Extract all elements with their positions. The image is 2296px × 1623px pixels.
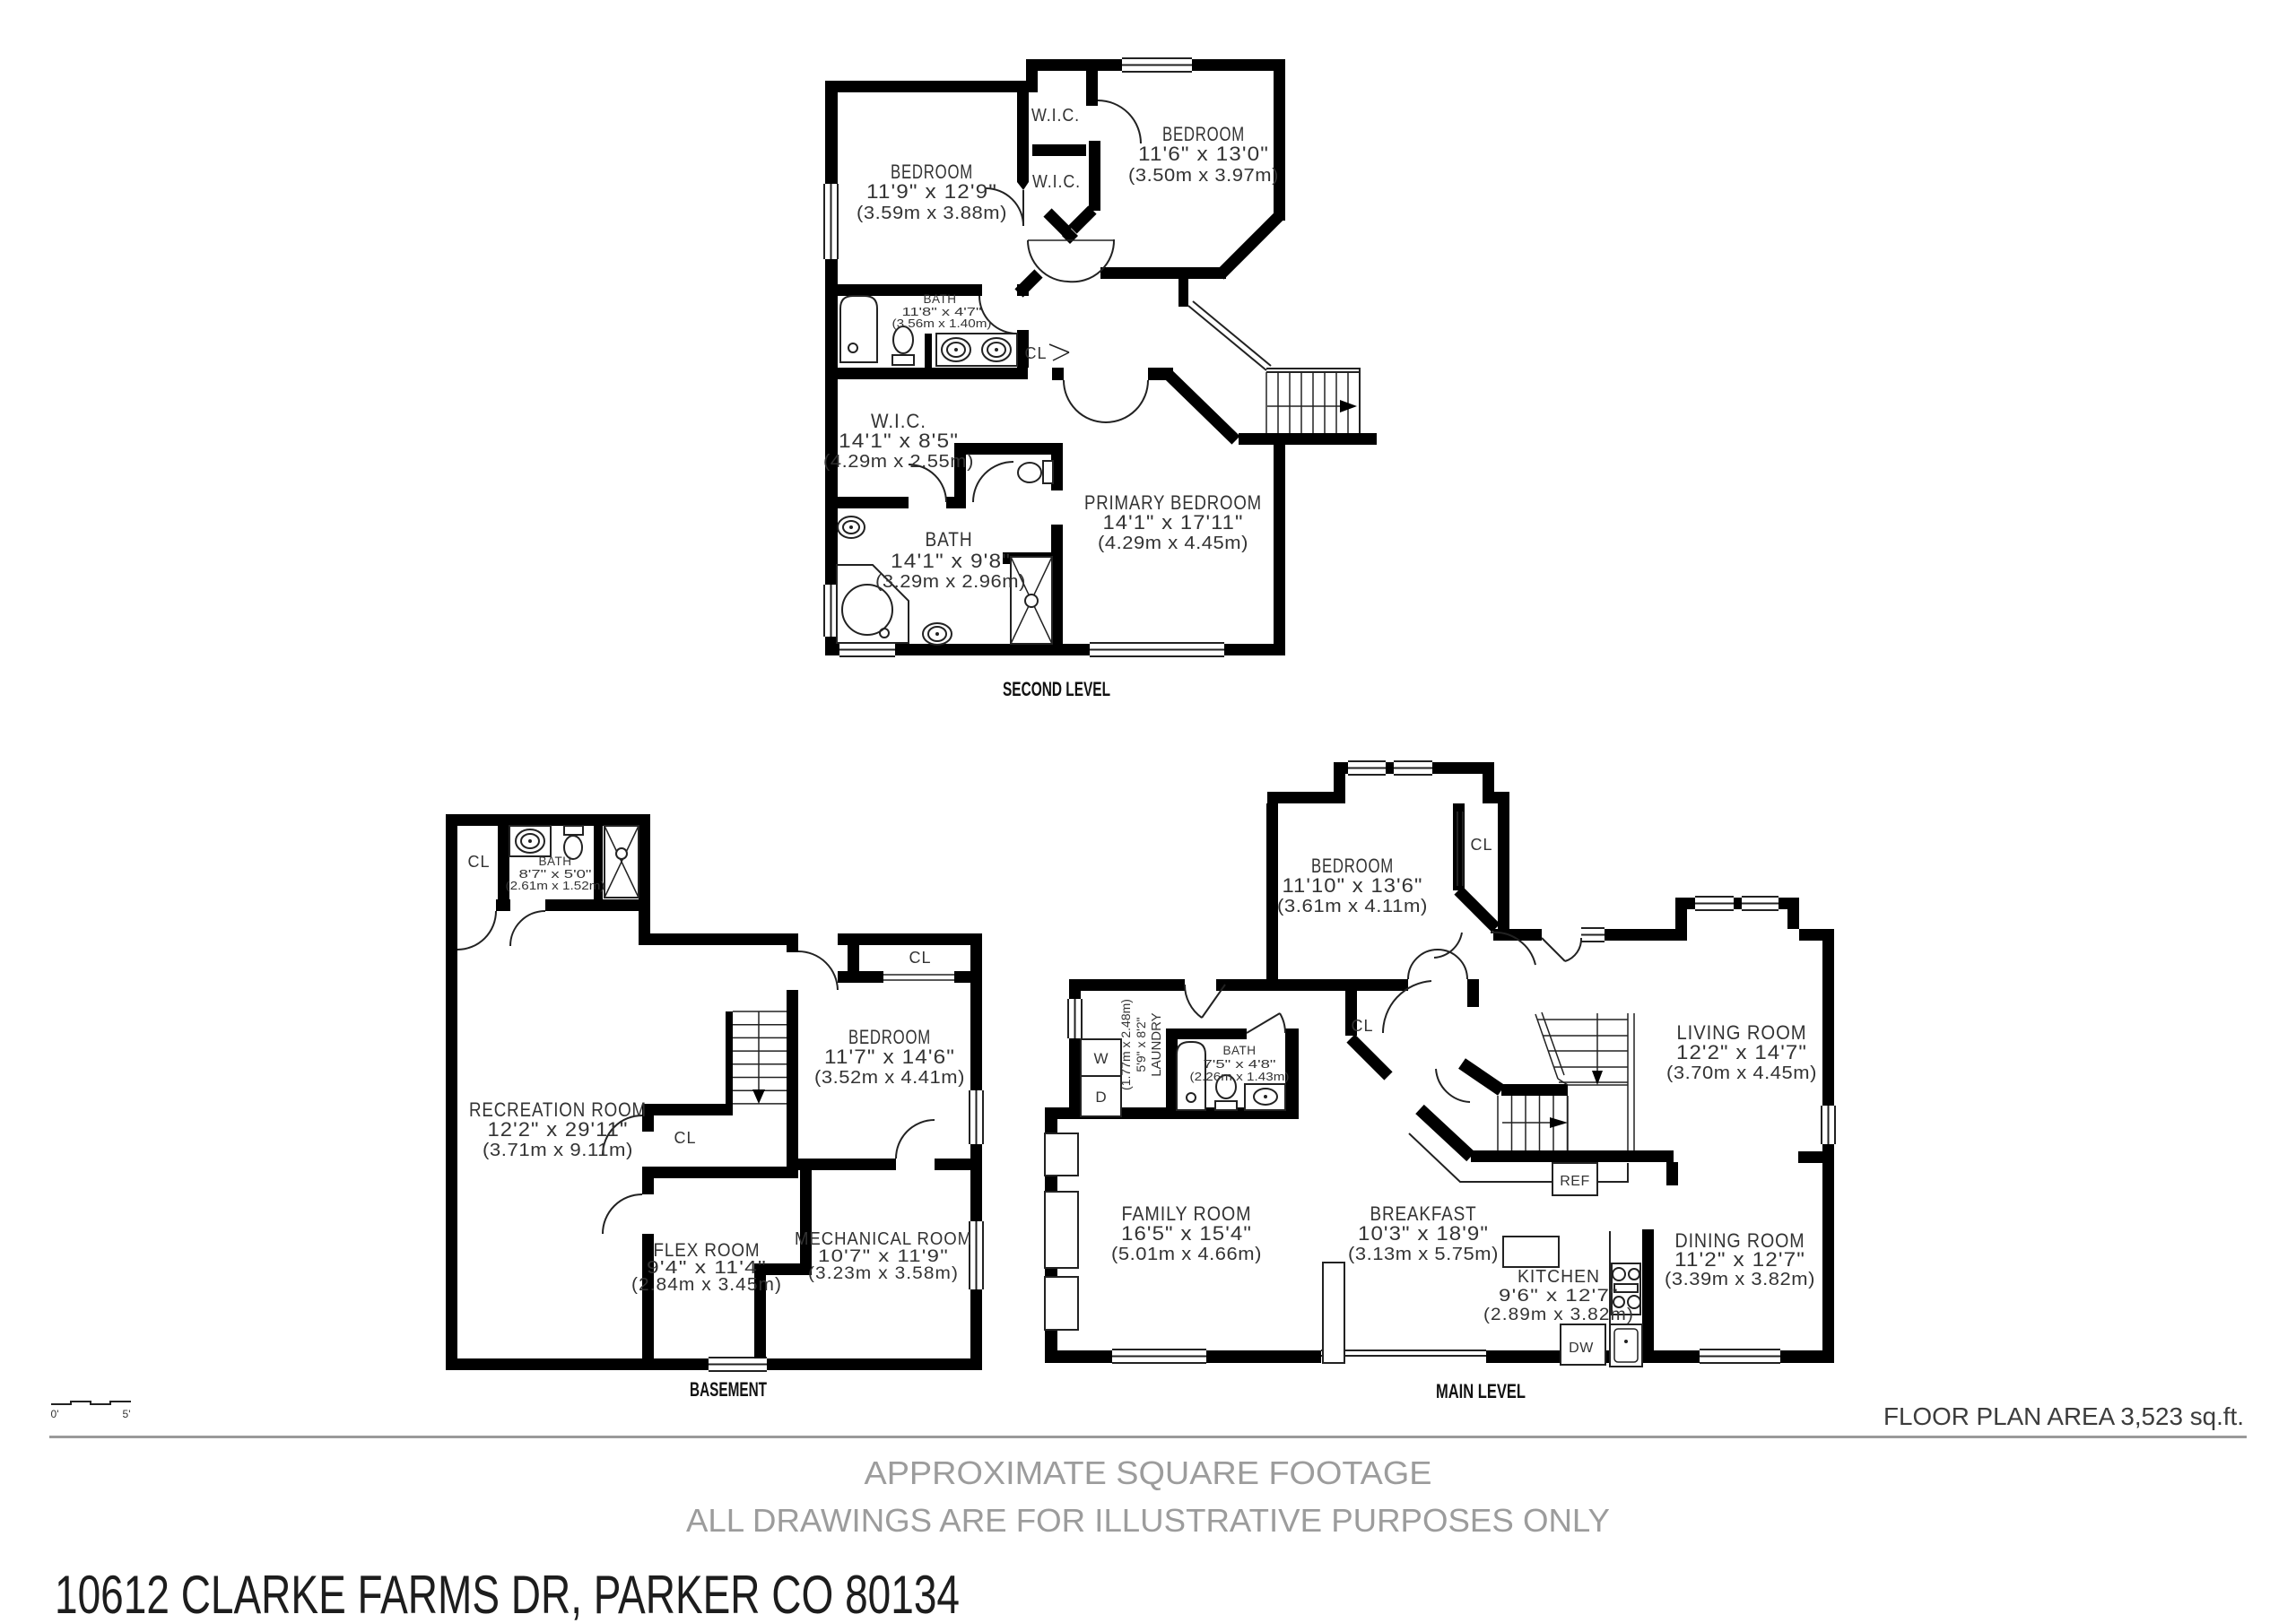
svg-text:(5.01m x 4.66m): (5.01m x 4.66m) xyxy=(1111,1245,1262,1264)
svg-text:LAUNDRY: LAUNDRY xyxy=(1149,1012,1164,1076)
svg-text:(2.89m x 3.82m): (2.89m x 3.82m) xyxy=(1483,1306,1634,1324)
svg-text:(3.13m x 5.75m): (3.13m x 5.75m) xyxy=(1348,1245,1499,1264)
svg-text:0': 0' xyxy=(51,1408,59,1420)
svg-text:MAIN LEVEL: MAIN LEVEL xyxy=(1436,1380,1526,1402)
svg-text:14'1" x 17'11": 14'1" x 17'11" xyxy=(1103,511,1244,534)
svg-text:14'1" x 9'8": 14'1" x 9'8" xyxy=(891,550,1011,572)
svg-text:CL: CL xyxy=(1351,1017,1373,1035)
svg-text:W.I.C.: W.I.C. xyxy=(1032,172,1081,192)
svg-text:(3.56m x 1.40m): (3.56m x 1.40m) xyxy=(892,317,992,330)
svg-text:(3.61m x 4.11m): (3.61m x 4.11m) xyxy=(1277,897,1428,916)
svg-text:(3.59m x 3.88m): (3.59m x 3.88m) xyxy=(857,204,1007,223)
svg-text:KITCHEN: KITCHEN xyxy=(1518,1267,1600,1287)
svg-text:10'3" x 18'9": 10'3" x 18'9" xyxy=(1358,1222,1489,1245)
svg-text:(3.29m x 2.96m): (3.29m x 2.96m) xyxy=(875,572,1026,592)
svg-text:(3.39m x 3.82m): (3.39m x 3.82m) xyxy=(1665,1270,1815,1289)
svg-text:BATH: BATH xyxy=(539,854,572,868)
svg-text:W.I.C.: W.I.C. xyxy=(1031,106,1080,126)
svg-text:BASEMENT: BASEMENT xyxy=(690,1378,767,1401)
svg-text:D: D xyxy=(1095,1089,1107,1106)
svg-text:DW: DW xyxy=(1569,1341,1594,1356)
svg-text:11'2" x 12'7": 11'2" x 12'7" xyxy=(1674,1248,1805,1271)
svg-text:W: W xyxy=(1093,1050,1109,1067)
svg-text:APPROXIMATE SQUARE FOOTAGE: APPROXIMATE SQUARE FOOTAGE xyxy=(865,1454,1432,1491)
svg-text:BATH: BATH xyxy=(1223,1043,1257,1057)
svg-text:(3.50m x 3.97m): (3.50m x 3.97m) xyxy=(1128,166,1279,186)
svg-text:14'1" x 8'5": 14'1" x 8'5" xyxy=(839,430,959,452)
svg-text:(3.71m x 9.11m): (3.71m x 9.11m) xyxy=(483,1141,633,1160)
svg-text:(4.29m x 2.55m): (4.29m x 2.55m) xyxy=(823,452,974,472)
svg-text:(2.61m x 1.52m): (2.61m x 1.52m) xyxy=(506,879,605,892)
svg-text:CL: CL xyxy=(467,853,490,871)
svg-text:CL: CL xyxy=(1024,344,1047,362)
svg-text:11'9" x 12'9": 11'9" x 12'9" xyxy=(866,180,997,203)
svg-text:FLOOR PLAN AREA 3,523 sq.ft.: FLOOR PLAN AREA 3,523 sq.ft. xyxy=(1883,1402,2244,1430)
svg-text:(2.84m x 3.45m): (2.84m x 3.45m) xyxy=(631,1275,782,1295)
svg-text:(3.52m x 4.41m): (3.52m x 4.41m) xyxy=(814,1068,965,1088)
svg-text:(4.29m x 4.45m): (4.29m x 4.45m) xyxy=(1098,534,1248,553)
svg-text:(3.23m x 3.58m): (3.23m x 3.58m) xyxy=(808,1264,959,1283)
svg-text:11'6" x 13'0": 11'6" x 13'0" xyxy=(1138,143,1269,165)
svg-text:10612 CLARKE FARMS DR, PARKER: 10612 CLARKE FARMS DR, PARKER CO 80134 xyxy=(55,1565,960,1623)
svg-text:11'7" x 14'6": 11'7" x 14'6" xyxy=(824,1046,955,1068)
svg-text:11'10" x 13'6": 11'10" x 13'6" xyxy=(1283,874,1423,897)
svg-text:5'9" x 8'2": 5'9" x 8'2" xyxy=(1134,1017,1148,1072)
svg-text:7'5" x 4'8": 7'5" x 4'8" xyxy=(1204,1057,1277,1071)
svg-text:12'2" x 14'7": 12'2" x 14'7" xyxy=(1676,1041,1807,1063)
svg-text:12'2" x 29'11": 12'2" x 29'11" xyxy=(488,1118,629,1141)
svg-text:MECHANICAL ROOM: MECHANICAL ROOM xyxy=(795,1229,972,1249)
svg-text:CL: CL xyxy=(674,1129,696,1147)
svg-text:BATH: BATH xyxy=(926,528,973,551)
svg-text:16'5" x 15'4": 16'5" x 15'4" xyxy=(1121,1222,1252,1245)
svg-text:(1.77m x 2.48m): (1.77m x 2.48m) xyxy=(1118,999,1133,1090)
svg-text:REF: REF xyxy=(1560,1174,1590,1189)
svg-text:ALL DRAWINGS ARE FOR ILLUSTRAT: ALL DRAWINGS ARE FOR ILLUSTRATIVE PURPOS… xyxy=(686,1502,1610,1539)
svg-text:9'6" x 12'7": 9'6" x 12'7" xyxy=(1499,1287,1619,1306)
svg-text:5': 5' xyxy=(123,1408,131,1420)
svg-text:BATH: BATH xyxy=(924,291,957,306)
svg-text:CL: CL xyxy=(1470,836,1492,854)
svg-text:CL: CL xyxy=(909,949,931,967)
svg-text:(2.26m x 1.43m): (2.26m x 1.43m) xyxy=(1190,1070,1290,1083)
svg-text:10'7" x 11'9": 10'7" x 11'9" xyxy=(818,1247,949,1266)
svg-text:SECOND LEVEL: SECOND LEVEL xyxy=(1003,678,1110,700)
svg-text:(3.70m x 4.45m): (3.70m x 4.45m) xyxy=(1666,1063,1817,1083)
